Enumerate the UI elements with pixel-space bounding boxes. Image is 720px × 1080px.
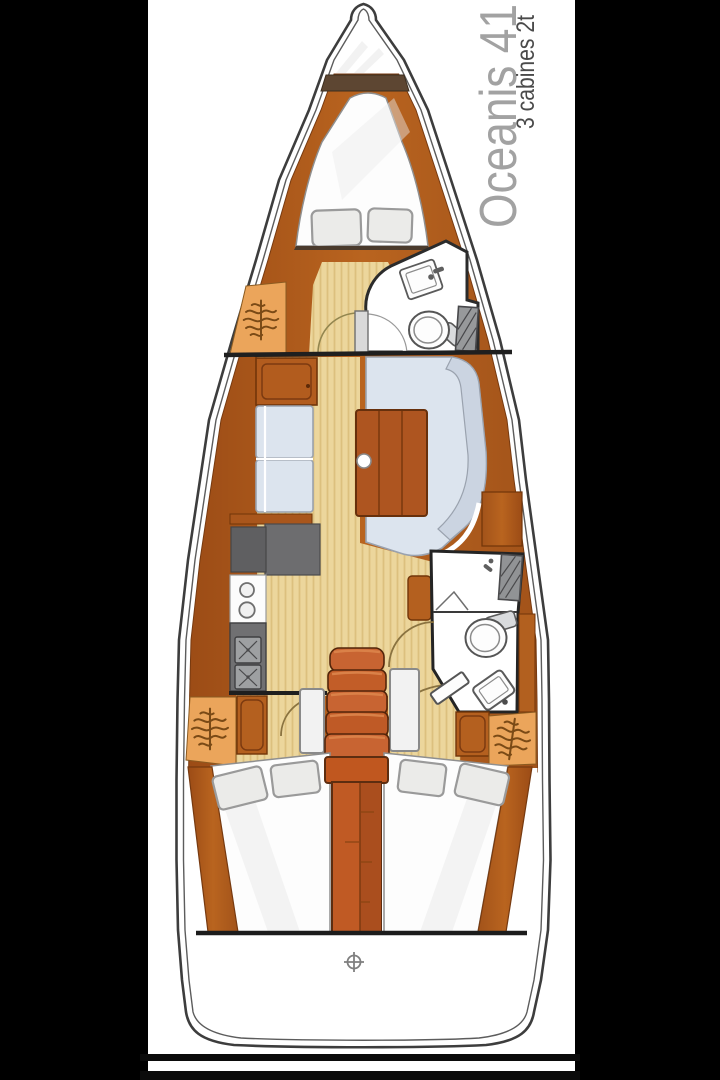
svg-text:3 cabines 2t: 3 cabines 2t	[512, 15, 540, 129]
